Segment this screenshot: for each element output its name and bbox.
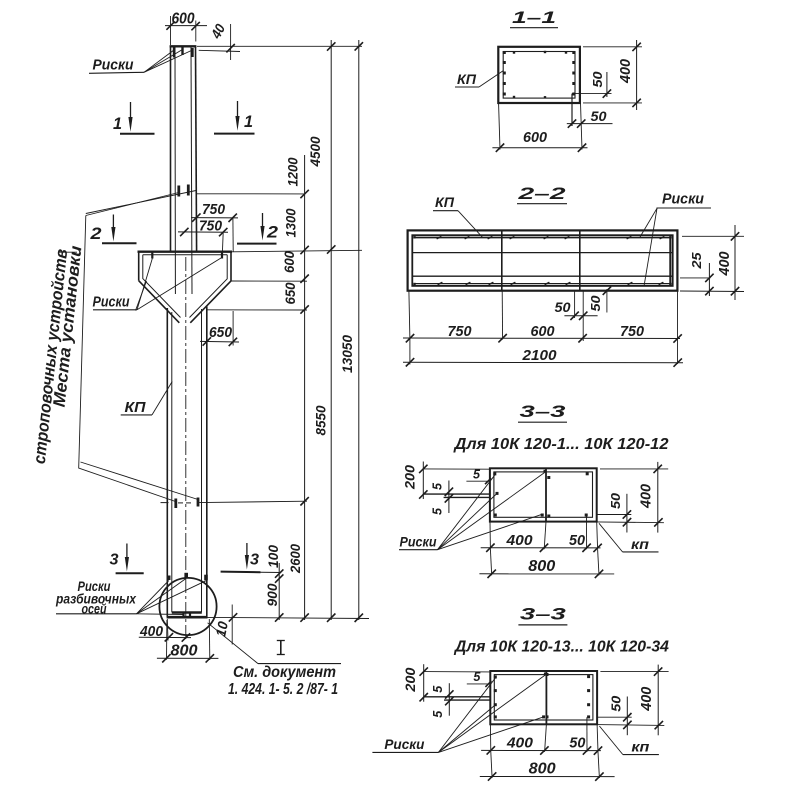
svg-text:400: 400 bbox=[639, 484, 655, 509]
svg-text:2100: 2100 bbox=[521, 347, 557, 364]
svg-text:50: 50 bbox=[590, 71, 605, 88]
svg-text:КП: КП bbox=[125, 399, 147, 416]
svg-text:800: 800 bbox=[528, 558, 555, 575]
svg-text:750: 750 bbox=[202, 201, 226, 218]
svg-text:1: 1 bbox=[244, 112, 253, 131]
svg-text:Риски: Риски bbox=[400, 534, 437, 550]
svg-text:5: 5 bbox=[430, 482, 445, 490]
svg-text:50: 50 bbox=[591, 108, 607, 124]
svg-text:См. документ: См. документ bbox=[233, 664, 336, 681]
svg-text:13050: 13050 bbox=[339, 335, 355, 373]
svg-text:5: 5 bbox=[430, 507, 445, 515]
svg-text:4500: 4500 bbox=[307, 136, 323, 167]
svg-text:2: 2 bbox=[89, 224, 102, 243]
svg-text:5: 5 bbox=[430, 685, 445, 693]
svg-text:400: 400 bbox=[506, 735, 534, 752]
svg-text:3–3: 3–3 bbox=[520, 402, 567, 421]
svg-text:600: 600 bbox=[531, 323, 556, 340]
svg-text:3: 3 bbox=[110, 552, 119, 569]
svg-text:25: 25 bbox=[689, 252, 704, 270]
svg-text:600: 600 bbox=[172, 11, 195, 28]
svg-text:8550: 8550 bbox=[313, 405, 329, 435]
svg-text:2–2: 2–2 bbox=[517, 184, 567, 203]
svg-text:200: 200 bbox=[402, 465, 418, 490]
svg-text:3–3: 3–3 bbox=[520, 605, 567, 624]
svg-text:200: 200 bbox=[402, 667, 418, 692]
svg-text:Для 10К 120-1... 10К 120-12: Для 10К 120-1... 10К 120-12 bbox=[452, 436, 668, 453]
svg-text:750: 750 bbox=[448, 323, 473, 340]
svg-text:50: 50 bbox=[555, 299, 571, 315]
svg-text:кп: кп bbox=[631, 739, 650, 755]
svg-text:5: 5 bbox=[430, 710, 445, 718]
svg-text:1300: 1300 bbox=[283, 208, 299, 237]
svg-text:600: 600 bbox=[281, 251, 297, 273]
svg-text:50: 50 bbox=[608, 492, 623, 509]
svg-text:50: 50 bbox=[588, 295, 603, 312]
svg-text:1. 424. 1- 5. 2 /87- 1: 1. 424. 1- 5. 2 /87- 1 bbox=[228, 681, 338, 698]
svg-text:кп: кп bbox=[631, 536, 650, 552]
svg-text:900: 900 bbox=[264, 583, 280, 606]
svg-text:650: 650 bbox=[209, 324, 233, 341]
svg-text:50: 50 bbox=[569, 735, 586, 752]
svg-text:Риски: Риски bbox=[93, 57, 134, 74]
svg-text:КП: КП bbox=[435, 194, 455, 210]
svg-text:1: 1 bbox=[113, 114, 122, 133]
svg-text:400: 400 bbox=[639, 687, 655, 712]
svg-text:5: 5 bbox=[473, 669, 481, 684]
svg-text:3: 3 bbox=[250, 552, 259, 569]
svg-text:400: 400 bbox=[505, 532, 533, 549]
svg-text:800: 800 bbox=[529, 761, 556, 778]
svg-text:50: 50 bbox=[608, 695, 623, 712]
svg-text:Риски: Риски bbox=[93, 294, 130, 311]
svg-text:800: 800 bbox=[171, 643, 198, 660]
svg-text:2: 2 bbox=[266, 223, 279, 242]
svg-text:1200: 1200 bbox=[285, 157, 301, 186]
svg-text:КП: КП bbox=[457, 71, 477, 87]
svg-text:Риски: Риски bbox=[662, 191, 704, 208]
svg-text:750: 750 bbox=[620, 323, 645, 340]
svg-text:400: 400 bbox=[618, 59, 634, 84]
svg-text:Для 10К 120-13... 10К 120-34: Для 10К 120-13... 10К 120-34 bbox=[453, 639, 669, 656]
svg-text:5: 5 bbox=[473, 467, 481, 482]
svg-text:2600: 2600 bbox=[287, 544, 303, 574]
svg-text:Риски: Риски bbox=[384, 736, 424, 752]
svg-text:600: 600 bbox=[523, 129, 548, 146]
svg-text:400: 400 bbox=[717, 252, 733, 277]
svg-text:50: 50 bbox=[569, 532, 586, 549]
svg-text:650: 650 bbox=[282, 282, 298, 304]
svg-text:1–1: 1–1 bbox=[512, 8, 556, 27]
svg-text:100: 100 bbox=[265, 545, 281, 568]
